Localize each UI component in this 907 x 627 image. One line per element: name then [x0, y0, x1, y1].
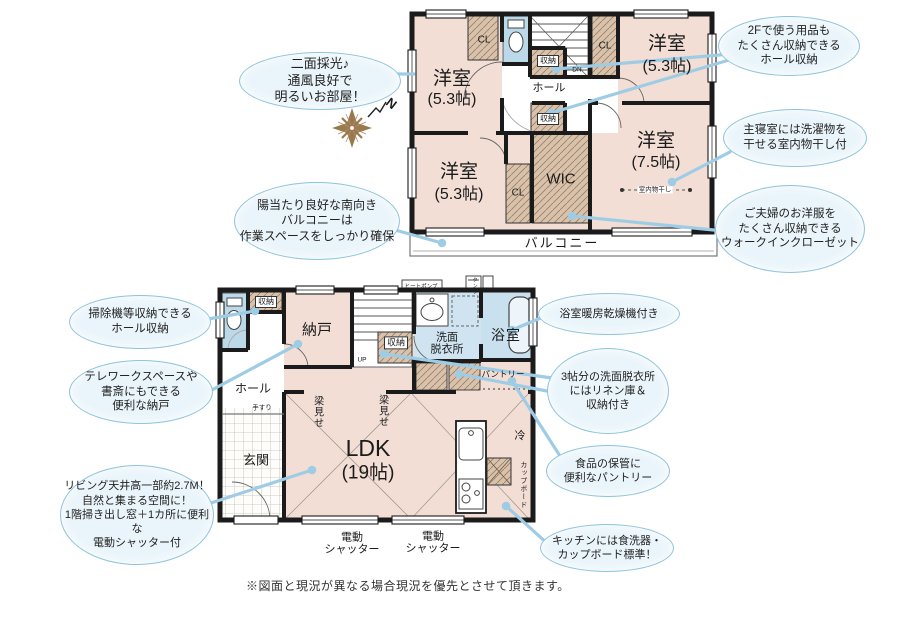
callout-balcony: 陽当たり良好な南向き バルコニーは 作業スペースをしっかり確保	[234, 182, 400, 260]
callout-washroom: 3帖分の洗面脱衣所 にはリネン庫＆ 収納付き	[547, 348, 669, 434]
callout-pantry: 食品の保管に 便利なパントリー	[546, 445, 670, 497]
beam-label-2: 梁見せ	[376, 395, 387, 428]
heatpump-label: ヒートポンプ	[405, 284, 438, 290]
callout-nando-text: テレワークスペースや 書斎にもできる 便利な納戸	[84, 370, 197, 415]
callout-pantry-text: 食品の保管に 便利なパントリー	[564, 457, 653, 486]
handrail-label: 手すり	[252, 404, 272, 411]
callout-living-text: リビング天井高一部約2.7M！ 自然と集まる空間に！ 1階掃き出し窓＋1カ所に便…	[61, 479, 213, 550]
vanity-fixture	[416, 294, 448, 326]
callout-washroom-text: 3帖分の洗面脱衣所 にはリネン庫＆ 収納付き	[561, 370, 655, 413]
room-label-ldk-size: (19帖)	[342, 462, 395, 483]
callout-indoor-drying-text: 主寝室には洗濯物を 干せる室内物干し付	[743, 123, 847, 153]
beam-label-1: 梁見せ	[311, 396, 322, 429]
room-label-2f-ne-size: (5.3帖)	[643, 58, 692, 76]
closet-label-cl-nw: CL	[478, 34, 491, 45]
kitchen-counter	[456, 421, 486, 513]
callout-hall-storage-1f-text: 掃除機等収納できる ホール収納	[88, 307, 191, 337]
callout-kitchen: キッチンには食洗器・ カップボード標準！	[540, 524, 674, 572]
stairs-dn-label: DN	[572, 66, 581, 73]
callout-bath-dryer: 浴室暖房乾燥機付き	[538, 293, 680, 335]
callout-hall-storage-2f: 2Fで使う用品も たくさん収納できる ホール収納	[718, 16, 860, 76]
closet-label-cl-sw: CL	[512, 187, 525, 198]
toilet-fixture-2f	[508, 20, 524, 52]
callout-hall-storage-2f-text: 2Fで使う用品も たくさん収納できる ホール収納	[737, 24, 840, 69]
refrigerator-label: 冷	[515, 430, 526, 442]
shutter-label-1: 電動 シャッター	[325, 532, 380, 557]
stairs-up-label: UP	[357, 356, 366, 363]
hall-label-2f: ホール	[533, 82, 566, 94]
room-label-2f-nw-size: (5.3帖)	[428, 91, 477, 109]
room-label-ldk-name: LDK	[346, 436, 391, 462]
callout-light: 二面採光♪ 通風良好で 明るいお部屋！	[239, 52, 401, 110]
storage-label-2f-mid: 収納	[537, 113, 559, 125]
room-label-2f-se-name: 洋室	[637, 130, 675, 151]
indoor-drying-label: 室内物干し	[638, 186, 673, 193]
room-label-pantry: パントリー	[482, 370, 525, 380]
callout-indoor-drying: 主寝室には洗濯物を 干せる室内物干し付	[723, 109, 867, 167]
room-label-nando: 納戸	[302, 323, 332, 340]
room-label-genkan: 玄関	[243, 454, 269, 469]
callout-bath-dryer-text: 浴室暖房乾燥機付き	[560, 307, 659, 321]
room-label-washroom: 洗面 脱衣所	[431, 332, 464, 357]
room-label-2f-ne-name: 洋室	[648, 33, 686, 54]
hall-label-1f: ホール	[235, 382, 271, 395]
callout-hall-storage-1f: 掃除機等収納できる ホール収納	[69, 295, 211, 349]
balcony-label: バルコニー	[525, 237, 600, 252]
storage-label-1f-stairs: 収納	[384, 336, 408, 349]
room-label-2f-sw-name: 洋室	[440, 161, 478, 182]
cupboard-label: カップボード	[519, 461, 527, 509]
closet-label-cl-ne: CL	[599, 40, 612, 51]
tank-label: タンク	[471, 277, 477, 295]
callout-living: リビング天井高一部約2.7M！ 自然と集まる空間に！ 1階掃き出し窓＋1カ所に便…	[60, 465, 214, 565]
room-label-bathroom: 浴室	[491, 328, 521, 344]
callout-wic-text: ご夫婦のお洋服を たくさん収納できる ウォークインクローゼット	[721, 207, 859, 252]
callout-light-text: 二面採光♪ 通風良好で 明るいお部屋！	[274, 56, 365, 107]
room-label-2f-sw-size: (5.3帖)	[435, 186, 484, 204]
room-label-2f-nw-name: 洋室	[433, 68, 471, 89]
storage-label-2f-top: 収納	[537, 55, 559, 67]
callout-wic: ご夫婦のお洋服を たくさん収納できる ウォークインクローゼット	[715, 185, 865, 273]
disclaimer-note: ※図面と現況が異なる場合現況を優先とさせて頂きます。	[246, 577, 570, 594]
room-label-2f-se-size: (7.5帖)	[632, 154, 681, 172]
storage-label-1f-hall: 収納	[255, 296, 277, 308]
room-label-wic: WIC	[546, 172, 575, 189]
callout-nando: テレワークスペースや 書斎にもできる 便利な納戸	[69, 360, 213, 424]
callout-kitchen-text: キッチンには食洗器・ カップボード標準！	[552, 534, 662, 563]
shutter-label-2: 電動 シャッター	[406, 531, 461, 556]
floor-plan-page: { "callouts": [ {"id": "light", "text": …	[0, 0, 907, 627]
callout-balcony-text: 陽当たり良好な南向き バルコニーは 作業スペースをしっかり確保	[240, 198, 395, 245]
